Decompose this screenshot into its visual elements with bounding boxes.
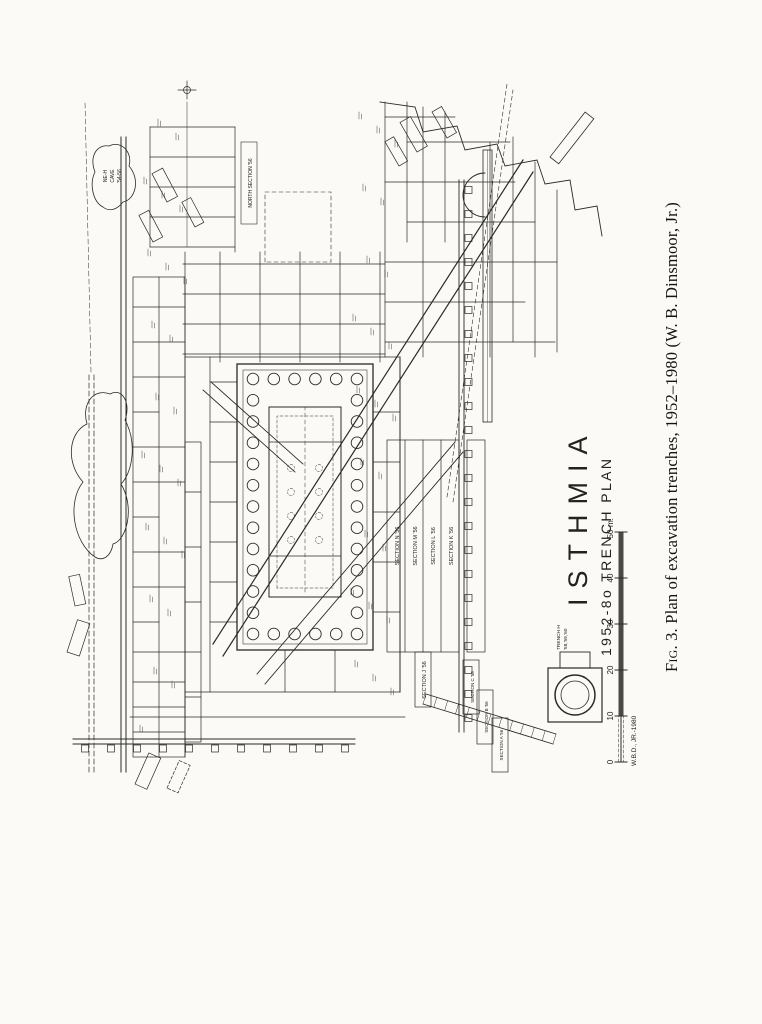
trench-plan-rotated: ISTHMIA 1952-8o TRENCH PLAN W.B.D., JR.-… [55, 30, 647, 802]
northwest-trenches [67, 574, 190, 793]
svg-text:'58,'59,'60: '58,'59,'60 [563, 628, 569, 650]
temple-plan [237, 364, 373, 650]
svg-text:SECTION M '56: SECTION M '56 [413, 526, 419, 565]
scale-unit-label: m. [606, 518, 615, 527]
scale-tick-label: 10 [606, 711, 615, 720]
scale-bar [615, 532, 627, 762]
svg-text:SECTION J '56: SECTION J '56 [422, 661, 428, 698]
scale-tick-label: 30 [606, 619, 615, 628]
figure-caption: Fig. 3. Plan of excavation trenches, 195… [662, 220, 686, 672]
wall-towers [465, 187, 472, 722]
svg-text:'54-56: '54-56 [117, 169, 123, 183]
svg-text:NE-H: NE-H [103, 170, 109, 183]
benchmark-marker [178, 81, 196, 99]
svg-text:SECTION C '56: SECTION C '56 [470, 671, 475, 703]
east-temenos-trenches [183, 252, 385, 362]
trench-plan-drawing: ISTHMIA 1952-8o TRENCH PLAN W.B.D., JR.-… [55, 30, 647, 802]
scale-tick-label: 0 [606, 759, 615, 764]
gully-outline [71, 392, 132, 558]
wall-towers [82, 745, 349, 752]
south-sections [387, 440, 508, 772]
east-field-trenches [380, 102, 602, 357]
plan-credit: W.B.D., JR.-1980 [631, 715, 638, 766]
svg-text:SECTION K '56: SECTION K '56 [449, 527, 455, 565]
svg-text:SECTION N '56: SECTION N '56 [395, 527, 401, 566]
towered-wall-west [73, 739, 355, 752]
svg-text:TRENCH H: TRENCH H [556, 625, 562, 650]
figure-caption-text: Plan of excavation trenches, 1952–1980 (… [662, 202, 681, 628]
towered-wall-south [459, 180, 472, 732]
south-section-labels: SECTION N '56 SECTION M '56 SECTION L '5… [395, 526, 455, 698]
scanned-page: ISTHMIA 1952-8o TRENCH PLAN W.B.D., JR.-… [0, 0, 762, 1024]
plan-title: ISTHMIA [563, 426, 593, 606]
north-roads [85, 102, 126, 772]
scale-tick-label: 20 [606, 665, 615, 674]
figure-caption-label: Fig. 3. [662, 628, 681, 672]
svg-text:CAVE: CAVE [110, 169, 116, 183]
trench-plan-figure: ISTHMIA 1952-8o TRENCH PLAN W.B.D., JR.-… [55, 30, 647, 802]
svg-text:SECTION L '56: SECTION L '56 [431, 527, 437, 565]
trench-h-monument [548, 652, 602, 722]
hatch-lines [423, 694, 556, 744]
hatched-diagonal-trench [423, 694, 556, 744]
svg-text:SECTION A '56: SECTION A '56 [499, 729, 504, 760]
scale-tick-label: 50 [606, 529, 615, 538]
north-trench-strips [133, 277, 201, 757]
east-section-labels: SECTION C '56 SECTION B '56 SECTION A '5… [470, 671, 504, 761]
ne-cave-label: NE-H CAVE '54-56 [103, 169, 123, 183]
northeast-area [92, 102, 331, 262]
svg-text:SECTION B '56: SECTION B '56 [484, 701, 489, 733]
trench-h-label: TRENCH H '58,'59,'60 [556, 625, 569, 650]
north-section-label: NORTH SECTION '56 [248, 158, 254, 207]
scale-tick-label: 40 [606, 573, 615, 582]
